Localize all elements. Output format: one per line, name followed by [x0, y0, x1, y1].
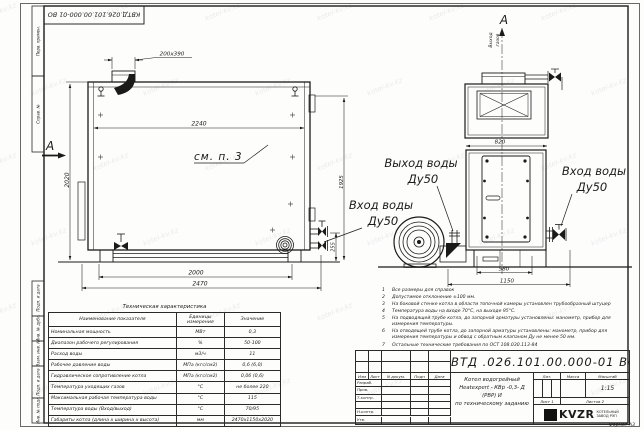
tb-mass-cell: [561, 380, 586, 398]
note-line: 1Все размеры для справок: [382, 288, 630, 294]
water-inlet-right-label: Вход воды: [562, 164, 626, 178]
kvzr-logo: KVZR КОТЕЛЬНЫЙЗАВОД РЭП: [544, 408, 619, 421]
tb-cell: [411, 402, 429, 409]
see-note-text: см. п. 3: [194, 151, 243, 163]
pipe-callouts: Выход воды Ду50 Вход воды Ду50 Вход воды…: [324, 156, 626, 242]
spec-row: Номинальная мощностьМВт0,3: [49, 327, 281, 338]
flue-flag-detail: [114, 74, 135, 95]
dim-2240-text: 2240: [191, 121, 206, 128]
kvzr-logo-text: KVZR: [559, 408, 594, 421]
spec-row: Габариты котла (длина х ширина х высота)…: [49, 415, 281, 426]
top-stamp-number: КВТД.026.101.00.000-01 ВО: [48, 11, 141, 19]
margin-label: Инв. № подл.: [36, 396, 41, 424]
tb-cell: [429, 402, 451, 409]
tb-scale-value: 1:15: [586, 380, 629, 398]
tb-cell: [382, 351, 411, 362]
tb-col-doc: N докум.: [382, 373, 411, 380]
margin-label: Перв. примен.: [36, 26, 41, 56]
kvzr-logo-icon: [544, 409, 557, 421]
tb-lit-cell: [534, 380, 543, 398]
tb-cell: [411, 395, 429, 402]
engineering-drawing-sheet: { "sheet": { "top_stamp_number": "КВТД.0…: [0, 0, 644, 430]
water-outlet-label: Выход воды: [384, 156, 457, 170]
tb-row-prov: Пров.: [356, 387, 382, 394]
water-inlet-valve-side: [310, 221, 328, 251]
kvzr-logo-subtext: КОТЕЛЬНЫЙЗАВОД РЭП: [596, 411, 618, 419]
burner-sight-glass: [277, 237, 294, 254]
tb-lit-cell: [552, 380, 561, 398]
water-outlet-size: Ду50: [407, 172, 438, 186]
tb-cell: [356, 402, 382, 409]
tb-row-razrab: Разраб.: [356, 380, 382, 387]
weld-marks: [98, 113, 295, 233]
spec-row: Температура воды (Вход/выход)°С70/95: [49, 404, 281, 415]
dim-2000-text: 2000: [188, 270, 203, 277]
damper-hatch: [477, 91, 531, 119]
tb-cell: [382, 362, 411, 373]
gas-outlet-label: газов: [496, 33, 501, 46]
tb-cell: [382, 395, 411, 402]
tb-cell: [382, 409, 411, 416]
note-line: 7Остальные технические требования по ОСТ…: [382, 343, 630, 349]
boiler-side-view: [58, 71, 340, 262]
spec-row: Рабочее давление водыМПа (кгс/см2)0,6 (6…: [49, 360, 281, 371]
spec-row: Максимальная рабочая температура воды°С1…: [49, 393, 281, 404]
tb-product-title: Котел водогрейный Heatexpert - КВр -0,3-…: [451, 373, 534, 424]
gas-outlet-label: Выход: [488, 32, 494, 47]
tb-cell: [429, 351, 451, 362]
tb-cell: [369, 351, 382, 362]
tb-sheet: Лист 1: [534, 398, 561, 405]
title-block: Изм Лист N докум. Подп Дата Разраб. Пров…: [355, 350, 630, 425]
spec-header-row: Наименование показателя Единицыизмерения…: [49, 313, 281, 327]
side-view-dimensions: [66, 57, 348, 291]
tb-cell: [411, 409, 429, 416]
tb-cell: [411, 362, 429, 373]
water-inlet-left-label: Вход воды: [349, 198, 413, 212]
water-inlet-valve-front: [546, 225, 566, 243]
tb-lit-cell: [543, 380, 552, 398]
tb-cell: [411, 387, 429, 394]
tb-product-line1: Котел водогрейный: [452, 377, 532, 385]
note-line: 3На боковой стенке котла в области топоч…: [382, 302, 630, 308]
tb-cell: [411, 417, 429, 425]
tb-product-line3: по техническому заданию: [452, 401, 532, 409]
tb-lit-label: Лит.: [534, 373, 561, 380]
spec-table: Наименование показателя Единицыизмерения…: [48, 312, 281, 427]
tb-sheets: Листов 2: [561, 398, 629, 405]
fan-duct: [440, 230, 466, 262]
margin-label: Справ. №: [36, 104, 41, 123]
note-line: 6На отводящей трубе котла, до запорной а…: [382, 329, 630, 341]
tb-product-line2: Heatexpert - КВр -0,3- Д (РВР) И: [452, 385, 532, 401]
tb-cell: [356, 351, 369, 362]
margin-stamp-labels: Перв. примен. Справ. № Подп. и дата Инв.…: [36, 26, 41, 424]
note-line: 2Допустимое отклонение ±100 мм.: [382, 295, 630, 301]
drain-valve: [114, 234, 128, 250]
see-note-callout: см. п. 3: [194, 145, 268, 163]
dim-1150-text: 1150: [500, 279, 515, 285]
tb-cell: [411, 351, 429, 362]
tb-col-date: Дата: [429, 373, 451, 380]
tb-cell: [382, 402, 411, 409]
margin-label: Подп. и дата: [36, 284, 41, 312]
furnace-door: [482, 156, 530, 242]
margin-label: Взам. инв. №: [36, 339, 41, 366]
tb-cell: [382, 387, 411, 394]
section-letter: А: [499, 13, 508, 27]
format-label: Формат А3: [575, 423, 635, 428]
tb-cell: [429, 395, 451, 402]
technical-notes: 1Все размеры для справок 2Допустимое отк…: [382, 288, 630, 350]
dim-2020-text: 2020: [64, 172, 71, 187]
spec-table-block: Техническая характеристика Наименование …: [48, 304, 281, 427]
tb-cell: [429, 387, 451, 394]
dim-255-text: 255: [331, 242, 337, 252]
tb-col-sign: Подп: [411, 373, 429, 380]
spec-col-name: Наименование показателя: [49, 313, 177, 327]
spec-col-value: Значение: [224, 313, 280, 327]
water-inlet-right-size: Ду50: [576, 180, 607, 194]
section-arrow-a-top: А Выход газов: [488, 13, 508, 48]
tb-cell: [429, 362, 451, 373]
tb-mass-label: Масса: [561, 373, 586, 380]
dim-2470-text: 2470: [192, 281, 207, 288]
tb-row-utv: Утв.: [356, 417, 382, 425]
dim-820-text: 820: [495, 140, 506, 146]
spec-row: Гидравлическое сопротивление котлаМПа (к…: [49, 371, 281, 382]
front-view-dim-texts: 820 580 1150: [495, 140, 515, 285]
tb-cell: [356, 362, 369, 373]
tb-col-izm: Изм: [356, 373, 369, 380]
section-arrow-a-left: А: [42, 139, 66, 159]
spec-row: Диапазон рабочего регулирования%50-100: [49, 338, 281, 349]
tb-cell: [429, 417, 451, 425]
boiler-front-view: [378, 28, 632, 274]
dim-nozzle-text: 200х390: [160, 52, 185, 58]
section-letter: А: [45, 139, 54, 153]
tb-col-list: Лист: [369, 373, 382, 380]
tb-scale-label: Масштаб: [586, 373, 629, 380]
note-line: 5На подводящей трубе котла, до запорной …: [382, 316, 630, 328]
top-corner-stamp: КВТД.026.101.00.000-01 ВО: [44, 6, 144, 24]
spec-table-title: Техническая характеристика: [48, 304, 281, 310]
tb-doc-number: КВТД .026.101.00.000-01 ВО: [451, 351, 629, 373]
note-line: 4Температура воды на входе 70°С, на выхо…: [382, 309, 630, 315]
tb-row-tkontr: Т.контр.: [356, 395, 382, 402]
blower-fan: [394, 217, 444, 267]
dim-580-text: 580: [499, 267, 510, 273]
water-inlet-left-size: Ду50: [367, 214, 398, 228]
tb-cell: [369, 362, 382, 373]
margin-label: Подп. и дата: [36, 368, 41, 396]
tb-cell: [382, 380, 411, 387]
spec-col-units: Единицыизмерения: [176, 313, 224, 327]
tb-row-nkontr: Н.контр.: [356, 409, 382, 416]
tb-logo-area: KVZR КОТЕЛЬНЫЙЗАВОД РЭП: [534, 405, 629, 424]
tb-cell: [429, 409, 451, 416]
spec-row: Температура уходящих газов°Сне более 220: [49, 382, 281, 393]
tb-cell: [411, 380, 429, 387]
spec-row: Расход водым3/ч11: [49, 349, 281, 360]
dim-1925-text: 1925: [339, 175, 345, 189]
tb-cell: [429, 380, 451, 387]
margin-label: Инв. № дубл.: [36, 314, 41, 341]
tb-cell: [382, 417, 411, 425]
